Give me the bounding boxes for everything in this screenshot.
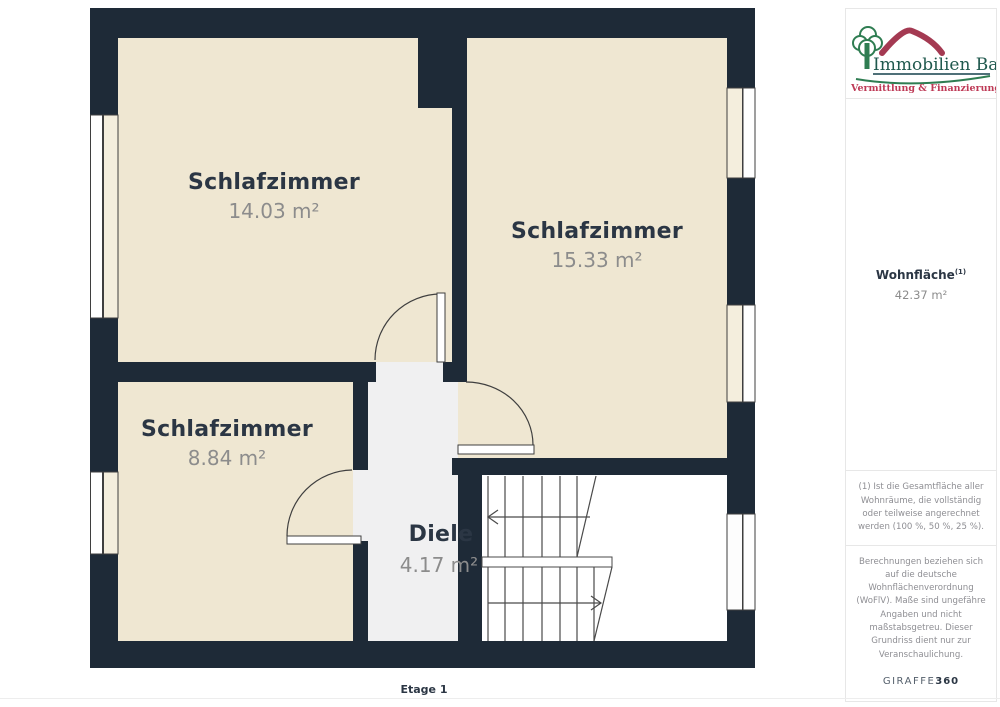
footnote-1-section: (1) Ist die Gesamtfläche aller Wohnräume… bbox=[846, 470, 996, 544]
agency-title: Immobilien Bart bbox=[873, 55, 996, 75]
living-area-label: Wohnfläche(1) bbox=[876, 268, 966, 282]
agency-subtitle: Vermittlung & Finanzierung bbox=[850, 83, 996, 94]
room2-name: Schlafzimmer bbox=[511, 219, 683, 244]
roof-icon bbox=[882, 30, 942, 53]
diele-name: Diele bbox=[409, 522, 474, 547]
window-right-top bbox=[727, 88, 755, 178]
footnote-2-text: Berechnungen beziehen sich auf die deuts… bbox=[855, 556, 987, 663]
living-area-value: 42.37 m² bbox=[895, 288, 947, 302]
room3-area: 8.84 m² bbox=[188, 446, 266, 470]
room2-area: 15.33 m² bbox=[551, 248, 642, 272]
window-right-bottom bbox=[727, 514, 755, 610]
room-floor-diele bbox=[368, 362, 458, 641]
footnote-1-text: (1) Ist die Gesamtfläche aller Wohnräume… bbox=[855, 481, 987, 534]
room1-name: Schlafzimmer bbox=[188, 170, 360, 195]
floor-label: Etage 1 bbox=[400, 683, 447, 696]
footnote-2-section: Berechnungen beziehen sich auf die deuts… bbox=[846, 545, 996, 702]
wall-room2-stairwell bbox=[452, 458, 727, 475]
wall-stub-door1 bbox=[443, 362, 467, 382]
info-panel: Immobilien Bart Vermittlung & Finanzieru… bbox=[845, 8, 997, 702]
window-right-middle bbox=[727, 305, 755, 402]
living-area-label-text: Wohnfläche bbox=[876, 268, 955, 282]
wall-room1-room2 bbox=[452, 108, 467, 382]
room1-area: 14.03 m² bbox=[228, 199, 319, 223]
window-left-top bbox=[91, 115, 119, 318]
room3-name: Schlafzimmer bbox=[141, 417, 313, 442]
page-bottom-divider bbox=[0, 698, 1000, 699]
window-left-bottom bbox=[91, 472, 119, 554]
wall-room1-room2-upper bbox=[418, 38, 467, 108]
wall-room3-diele-upper bbox=[353, 382, 368, 470]
giraffe360-brand: GIRAFFE360 bbox=[855, 676, 987, 687]
agency-logo-graphic: Immobilien Bart Vermittlung & Finanzieru… bbox=[846, 13, 996, 95]
living-area-summary: Wohnfläche(1) 42.37 m² bbox=[846, 99, 996, 470]
diele-area: 4.17 m² bbox=[400, 553, 478, 577]
doorway-gap-diele-room3 bbox=[353, 470, 368, 541]
wall-room1-room3 bbox=[90, 362, 376, 382]
giraffe360-brand-suffix: 360 bbox=[935, 676, 959, 687]
living-area-footnote-marker: (1) bbox=[955, 268, 966, 276]
wall-room3-diele-lower bbox=[353, 541, 368, 641]
agency-logo: Immobilien Bart Vermittlung & Finanzieru… bbox=[846, 9, 996, 99]
giraffe360-brand-name: GIRAFFE bbox=[883, 676, 935, 687]
